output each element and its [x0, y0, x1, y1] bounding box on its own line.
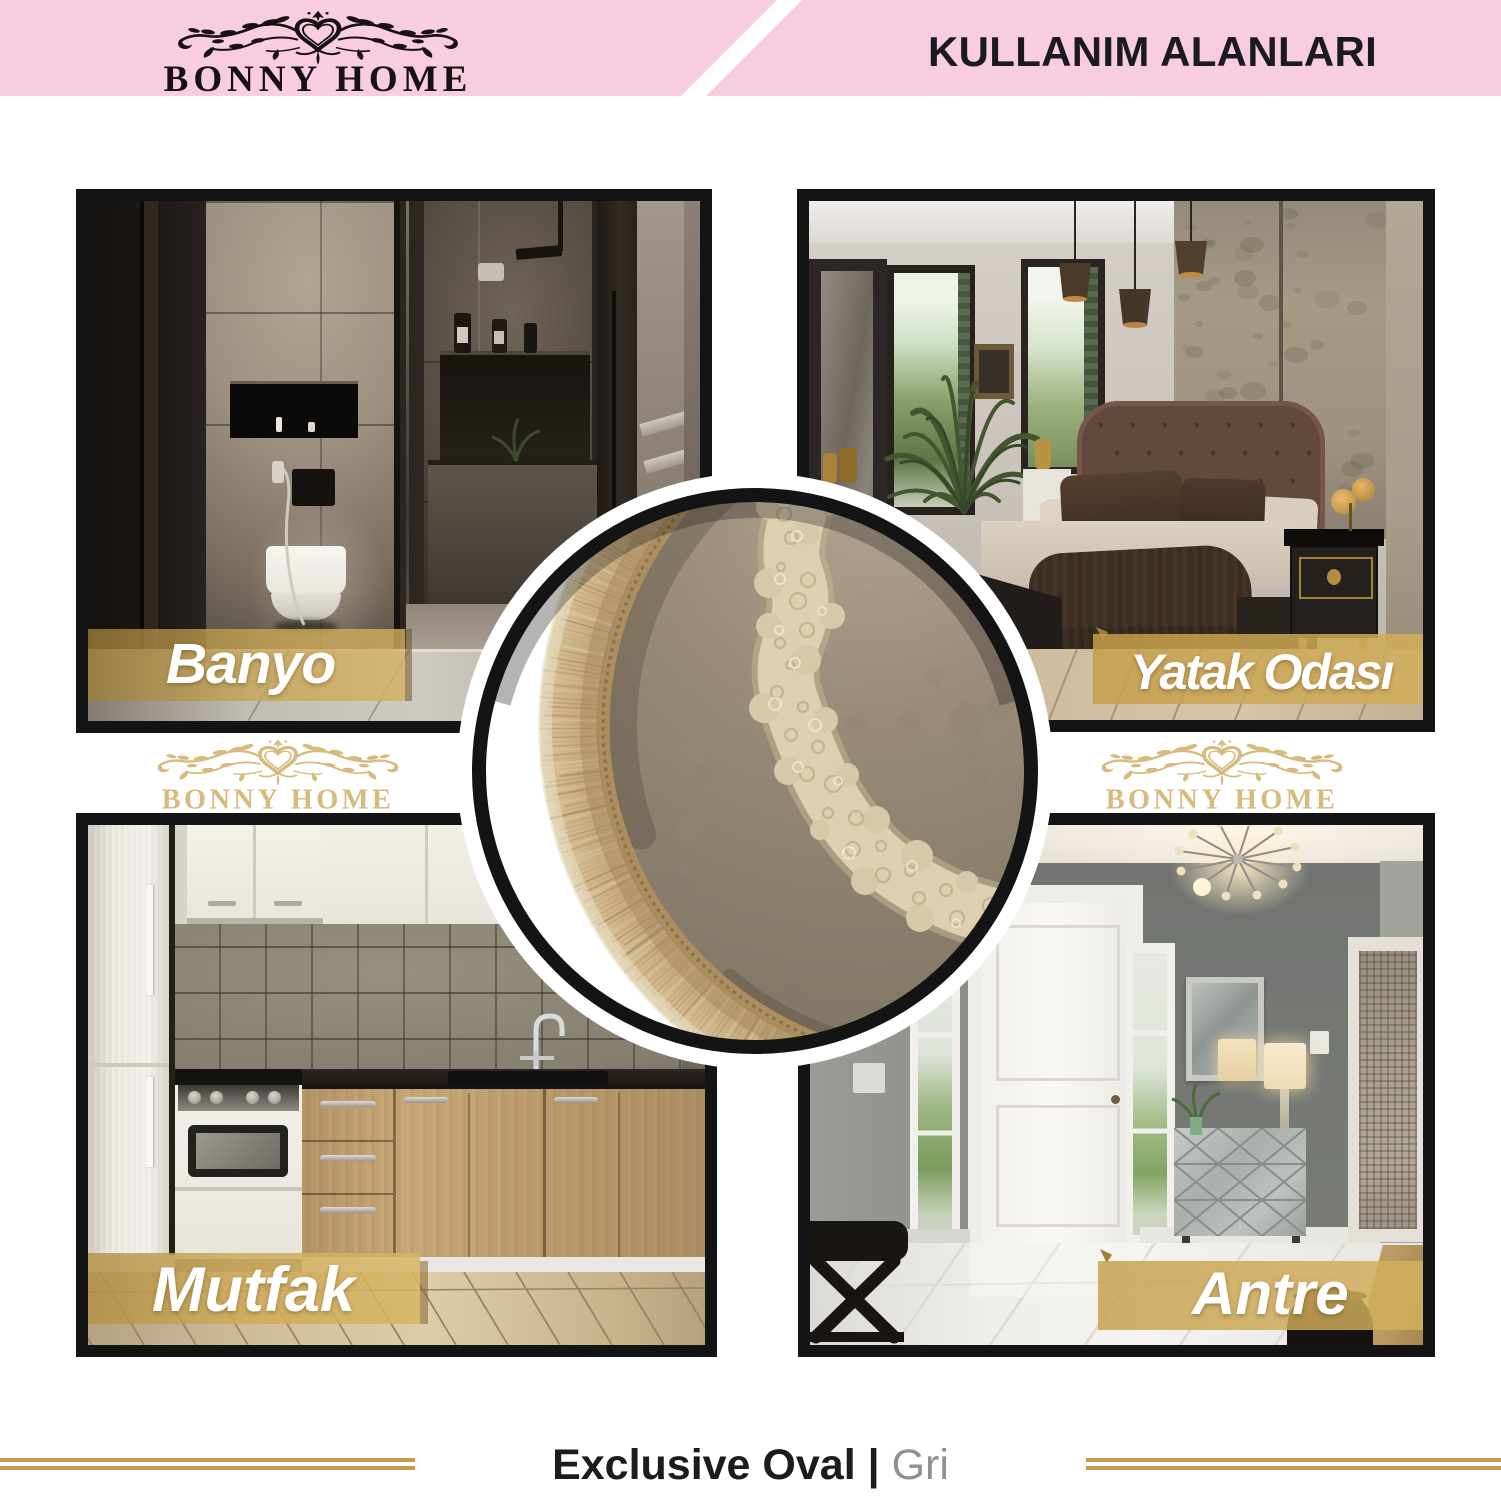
svg-text:BONNY HOME: BONNY HOME	[1106, 784, 1339, 815]
svg-text:BONNY HOME: BONNY HOME	[164, 59, 473, 100]
svg-text:BONNY HOME: BONNY HOME	[162, 784, 395, 815]
